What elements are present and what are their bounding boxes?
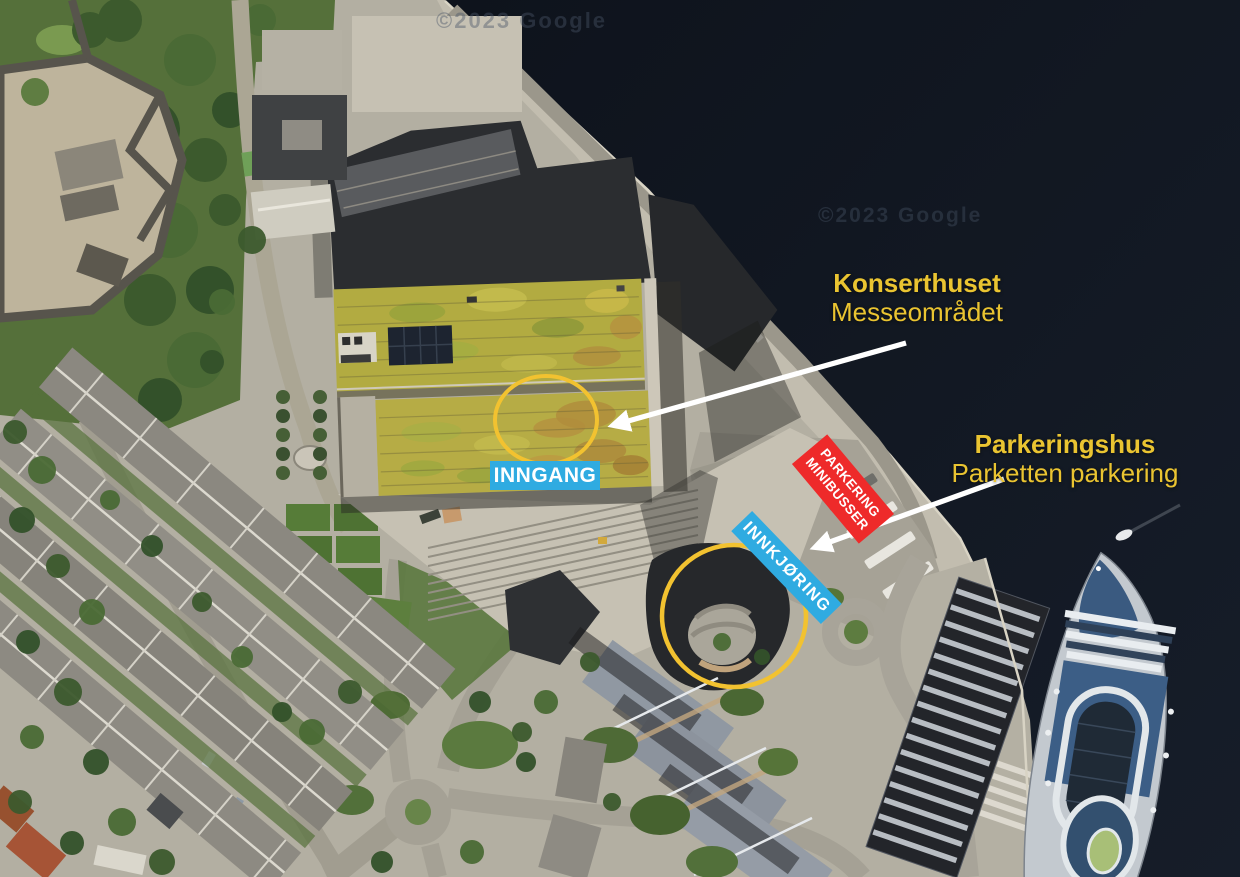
map-canvas: ©2023 Google ©2023 Google Konserthuset M… — [0, 0, 1240, 877]
label-konserthuset-subtitle: Messeområdet — [767, 298, 1067, 327]
label-konserthuset: Konserthuset Messeområdet — [767, 269, 1067, 326]
badge-inngang: INNGANG — [490, 461, 600, 490]
label-konserthuset-title: Konserthuset — [767, 269, 1067, 298]
arrow-konserthuset — [614, 343, 906, 425]
highlight-circle-inngang — [495, 376, 597, 464]
label-parkeringshus: Parkeringshus Parketten parkering — [905, 430, 1225, 487]
label-parkeringshus-title: Parkeringshus — [905, 430, 1225, 459]
label-parkeringshus-subtitle: Parketten parkering — [905, 459, 1225, 488]
